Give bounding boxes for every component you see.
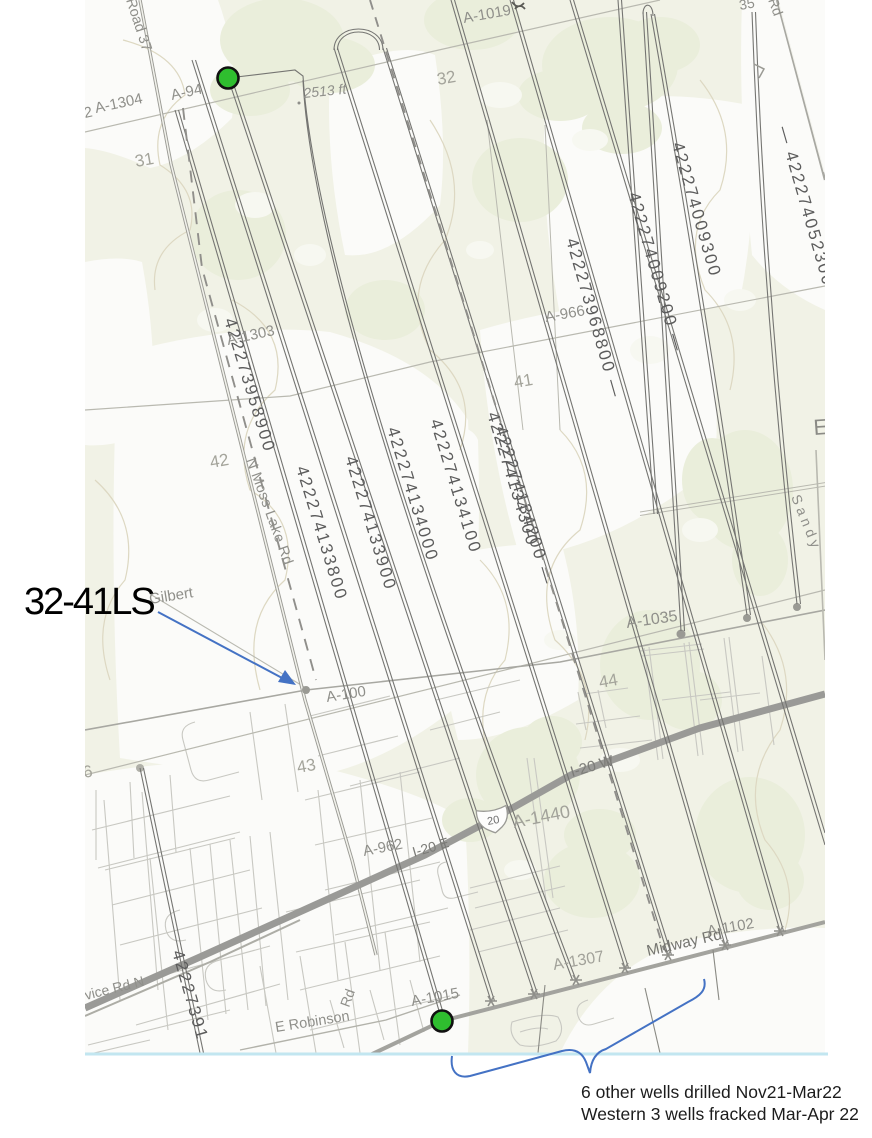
- svg-text:44: 44: [597, 670, 619, 692]
- svg-text:32: 32: [435, 67, 457, 89]
- svg-text:41: 41: [512, 370, 534, 392]
- svg-text:E: E: [813, 414, 829, 440]
- svg-text:43: 43: [295, 755, 317, 777]
- svg-text:42: 42: [208, 450, 230, 472]
- svg-text:20: 20: [486, 814, 500, 828]
- svg-text:31: 31: [133, 149, 155, 171]
